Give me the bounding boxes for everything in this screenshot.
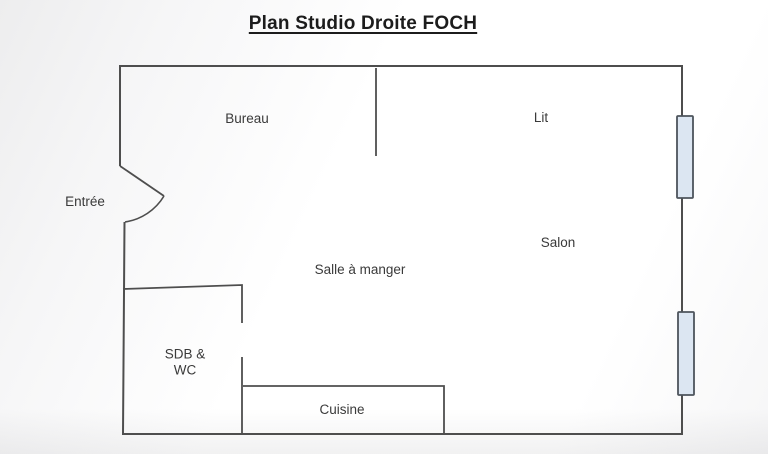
entry-door-leaf: [120, 166, 164, 196]
room-label-sdb-wc: SDB & WC: [165, 346, 206, 377]
room-label-lit: Lit: [534, 110, 548, 126]
outer-walls: [120, 66, 682, 434]
room-label-entree: Entrée: [65, 194, 105, 210]
room-label-salle-a-manger: Salle à manger: [315, 262, 406, 278]
room-label-bureau: Bureau: [225, 111, 269, 127]
entry-door-arc: [125, 196, 164, 222]
floor-plan-page: Plan Studio Droite FOCH Entrée Bureau Li…: [0, 0, 768, 454]
floor-plan-drawing: [0, 0, 768, 454]
window-marker-top: [677, 116, 693, 198]
room-label-cuisine: Cuisine: [319, 402, 364, 418]
room-label-salon: Salon: [541, 235, 576, 251]
window-marker-bottom: [678, 312, 694, 395]
